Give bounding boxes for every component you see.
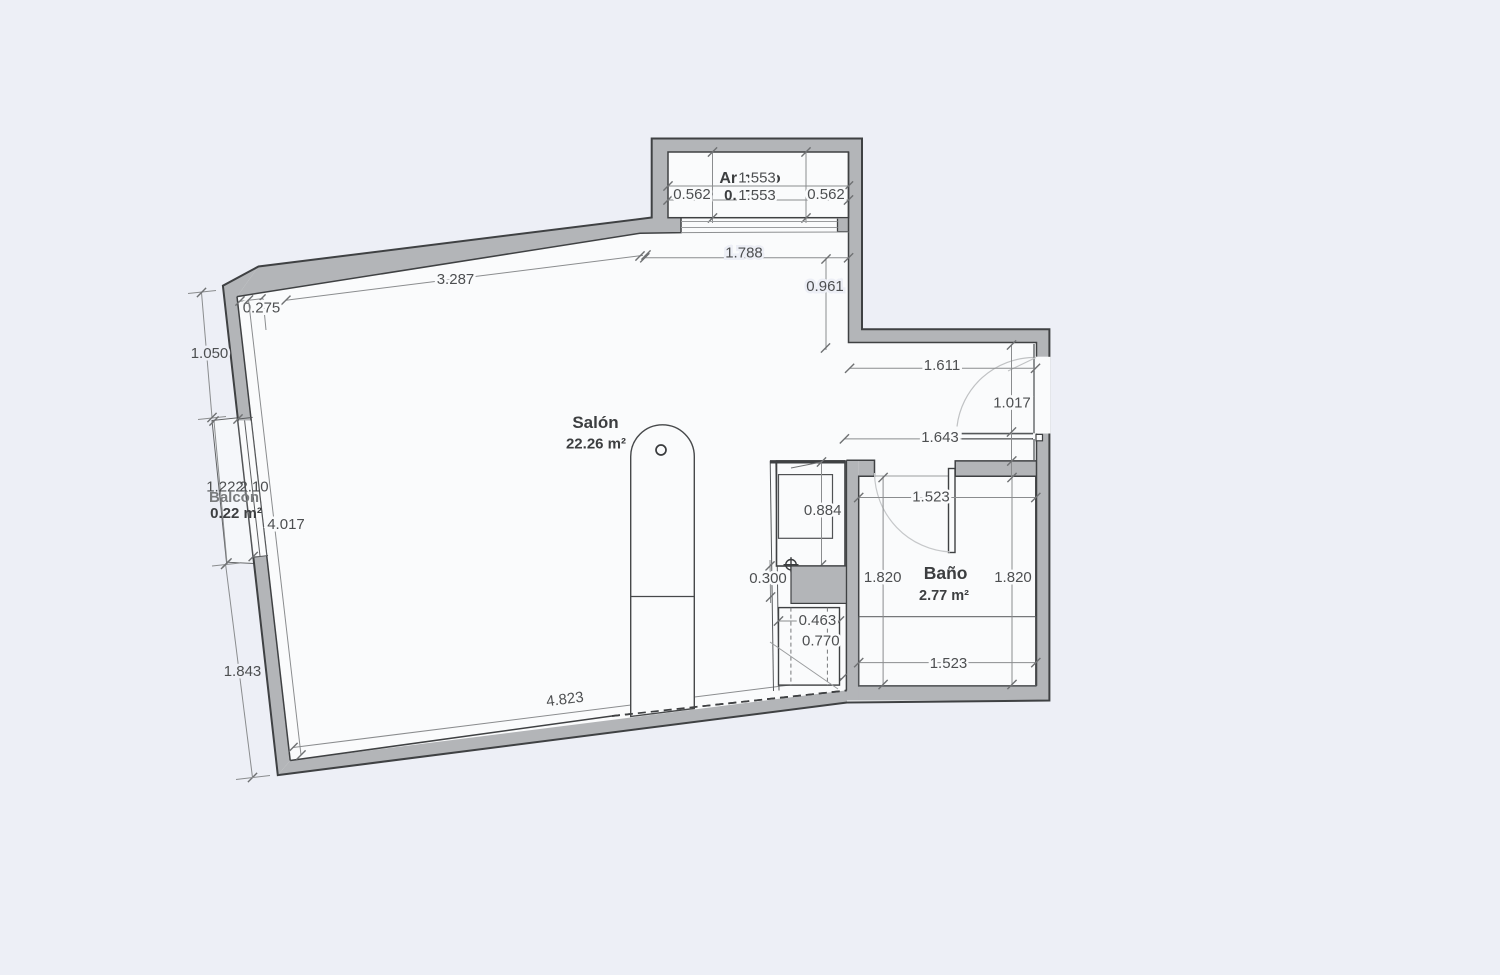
svg-text:Salón: Salón — [572, 413, 618, 432]
svg-text:1.820: 1.820 — [994, 569, 1032, 586]
svg-text:1.611: 1.611 — [924, 357, 960, 374]
svg-text:1.523: 1.523 — [930, 655, 968, 672]
svg-text:0.463: 0.463 — [799, 612, 837, 629]
svg-text:0.884: 0.884 — [804, 502, 842, 519]
svg-text:22.26 m²: 22.26 m² — [566, 436, 626, 453]
svg-text:0.770: 0.770 — [802, 632, 840, 649]
svg-text:2.77 m²: 2.77 m² — [919, 588, 969, 604]
svg-text:1.843: 1.843 — [224, 663, 262, 680]
svg-text:1.050: 1.050 — [191, 345, 229, 362]
svg-text:Baño: Baño — [924, 563, 968, 583]
svg-text:4.017: 4.017 — [267, 516, 305, 533]
svg-text:1.788: 1.788 — [725, 244, 763, 261]
svg-text:3.287: 3.287 — [437, 271, 475, 288]
svg-text:0.300: 0.300 — [749, 570, 787, 587]
svg-text:1.643: 1.643 — [921, 429, 959, 446]
svg-text:0.22 m²: 0.22 m² — [210, 505, 262, 522]
svg-text:0.562: 0.562 — [807, 186, 845, 203]
svg-text:1.553: 1.553 — [738, 187, 776, 204]
svg-text:0.562: 0.562 — [673, 186, 711, 203]
svg-text:0.961: 0.961 — [806, 278, 844, 295]
svg-text:Balcón: Balcón — [209, 489, 259, 506]
svg-text:1.820: 1.820 — [864, 569, 902, 586]
svg-text:1.553: 1.553 — [738, 169, 776, 186]
svg-text:1.017: 1.017 — [993, 394, 1031, 411]
svg-text:1.523: 1.523 — [912, 488, 950, 505]
